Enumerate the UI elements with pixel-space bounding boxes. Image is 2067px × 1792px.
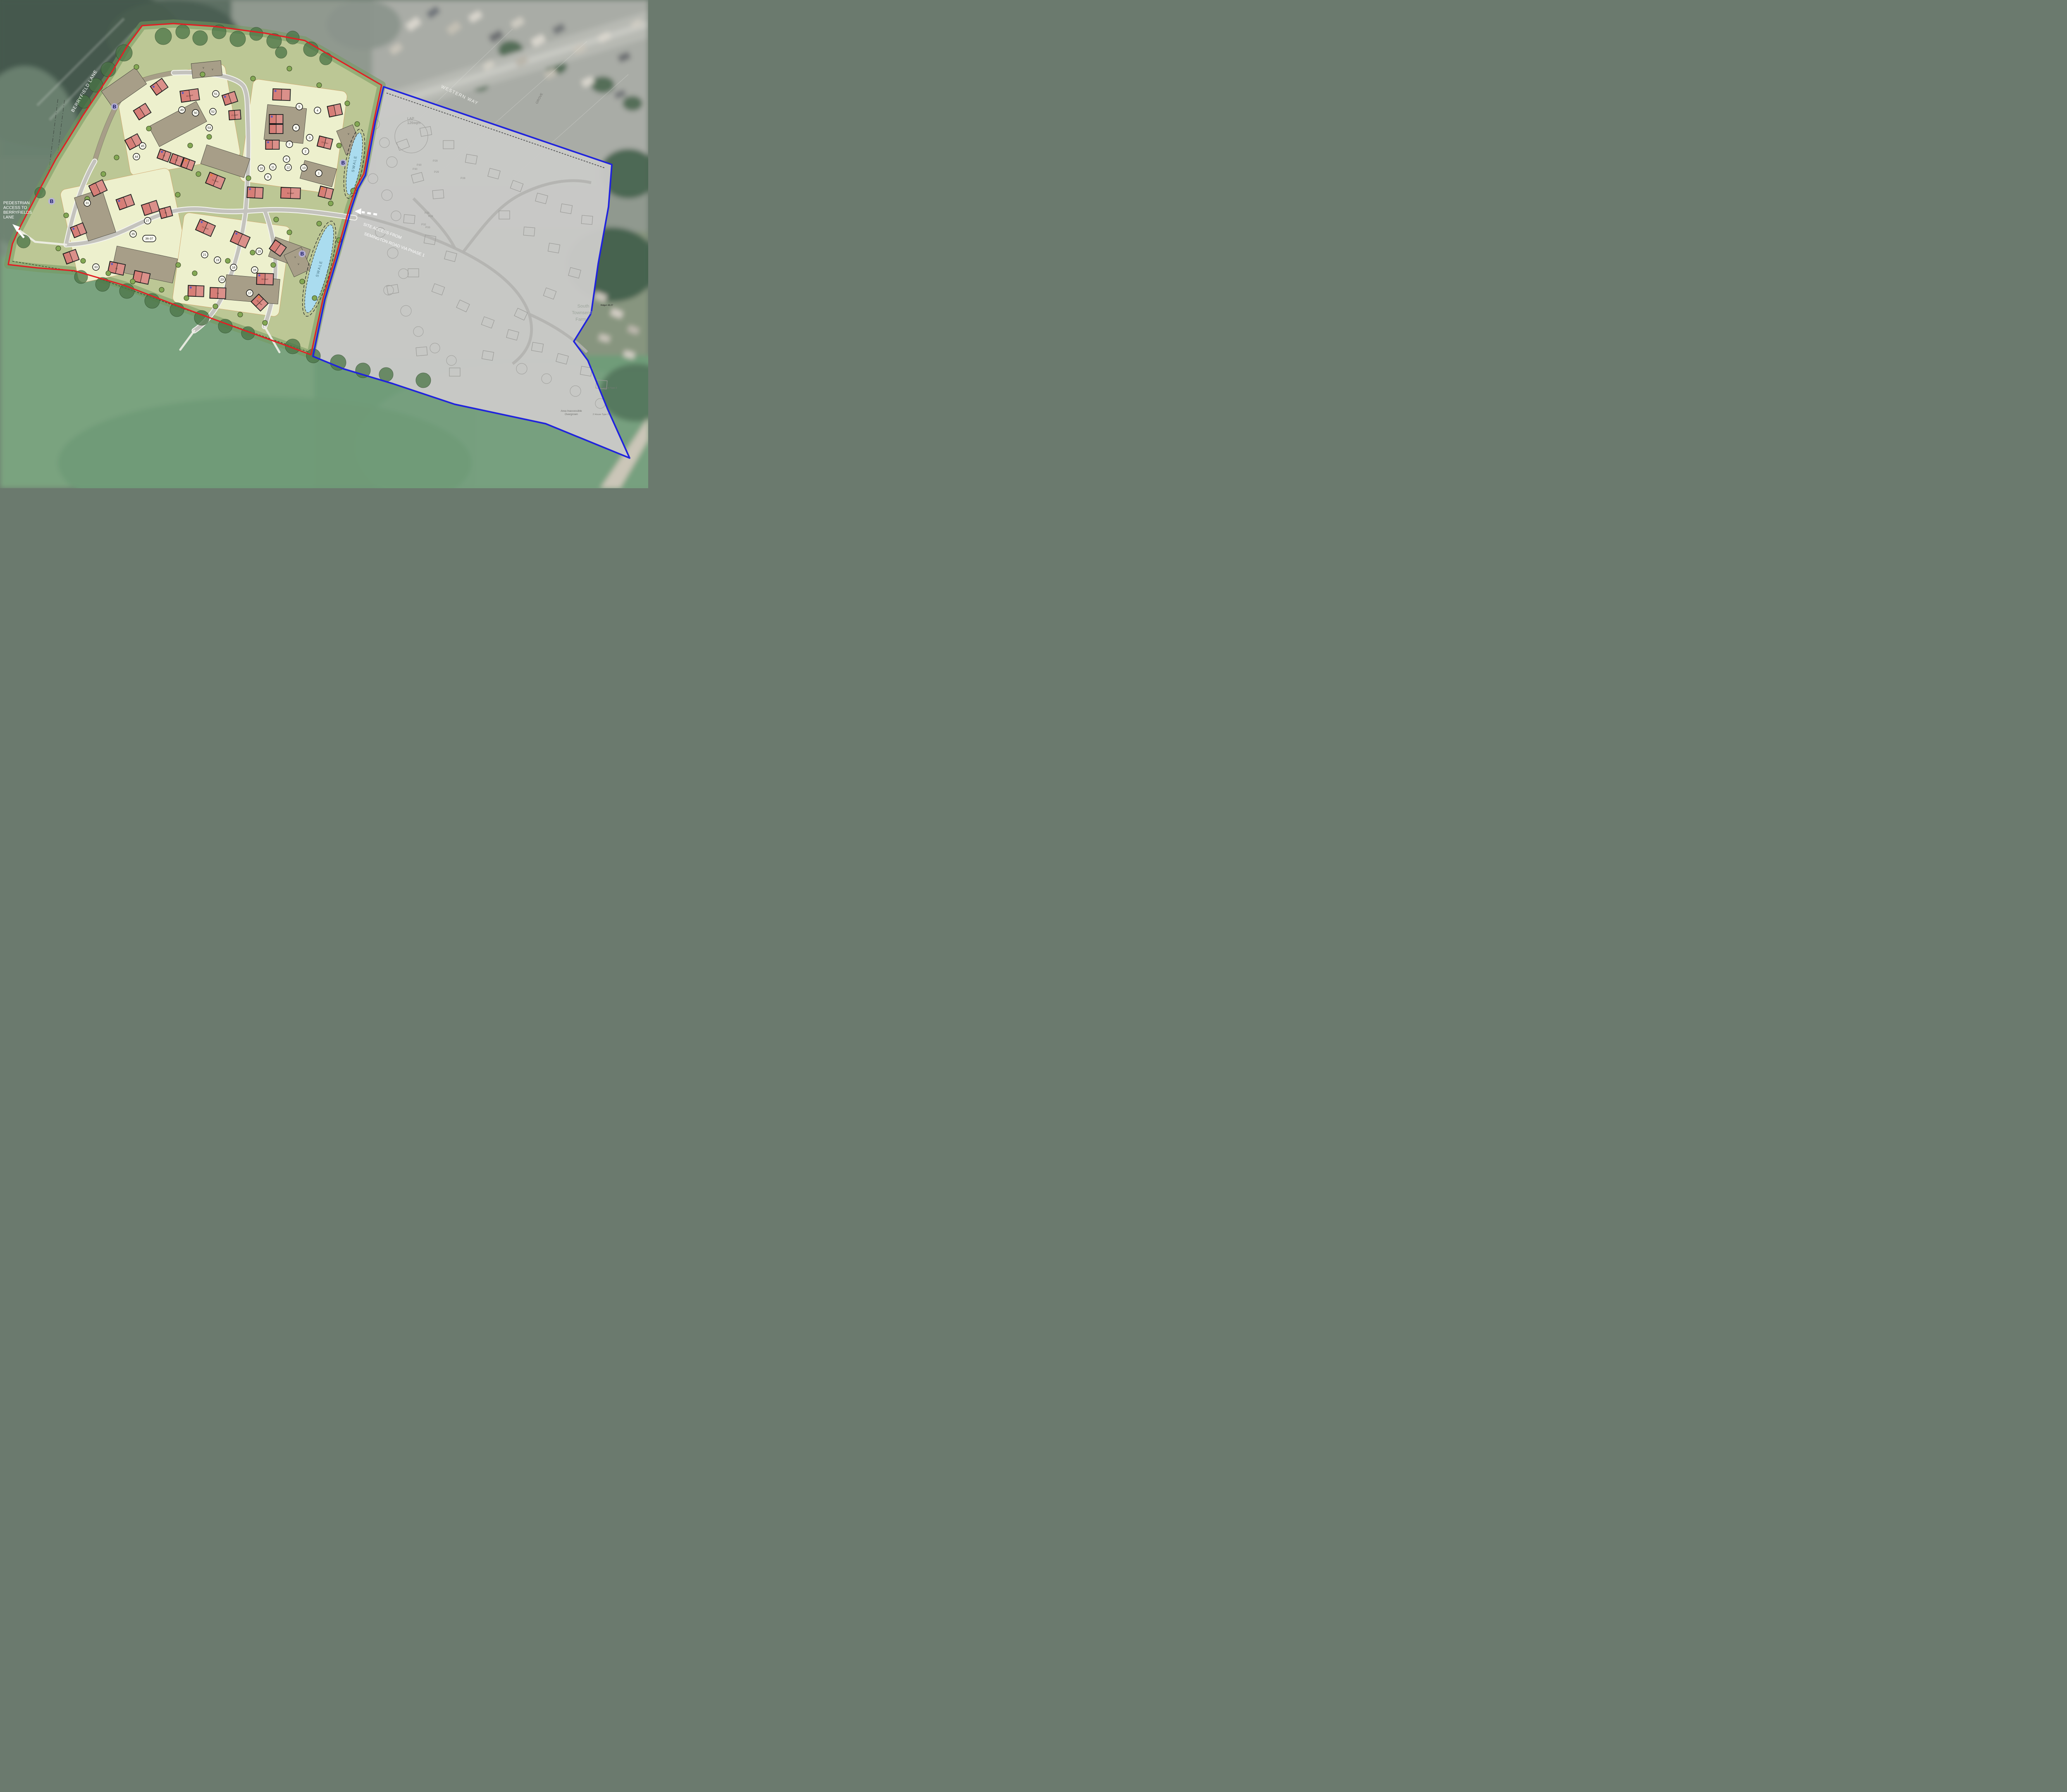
plot-number: 53 bbox=[206, 124, 212, 131]
plot-number: 23 bbox=[219, 276, 225, 283]
plot-number: 16 bbox=[251, 267, 258, 273]
street-tree bbox=[188, 143, 193, 148]
house-roof-half bbox=[276, 124, 283, 134]
south-townsend-farm-label: Farm bbox=[575, 317, 586, 322]
pedestrian-access-label: BERRYFIELDS bbox=[3, 210, 32, 215]
boundary-tree bbox=[416, 373, 431, 388]
visitor-bay-mark: v bbox=[348, 133, 349, 136]
plot-number-text: 36-37 bbox=[145, 237, 153, 241]
tenure-asterisk: ✱ bbox=[189, 286, 192, 289]
plot-number: 35 bbox=[130, 231, 136, 237]
plot-number-text: 9 bbox=[267, 175, 269, 179]
boundary-tree bbox=[230, 31, 246, 47]
tenure-asterisk: ✱ bbox=[267, 141, 270, 144]
street-tree bbox=[159, 287, 164, 292]
house-roof-half bbox=[276, 115, 283, 124]
plot-number: 36-37 bbox=[143, 235, 156, 242]
section-marker-letter: B bbox=[50, 198, 54, 204]
plot-number-text: 18 bbox=[232, 266, 235, 270]
phase1-plot-ref: P32 bbox=[421, 223, 426, 226]
street-tree bbox=[287, 66, 292, 71]
street-tree bbox=[175, 192, 180, 197]
plot-number: 49 bbox=[179, 107, 185, 113]
plot-number-text: 53 bbox=[208, 126, 211, 130]
house: B3 2B4P✱ bbox=[180, 89, 199, 103]
visitor-bay-mark: v bbox=[298, 263, 299, 266]
street-tree bbox=[238, 312, 243, 317]
street-tree bbox=[196, 172, 201, 177]
street-tree bbox=[106, 271, 111, 276]
south-townsend-farm-label: Townsend bbox=[572, 310, 592, 315]
plot-number: 1 bbox=[315, 170, 322, 177]
plot-number-text: 45 bbox=[141, 144, 144, 148]
plot-number: 31 bbox=[84, 200, 91, 206]
plot-number-text: 4 bbox=[317, 109, 318, 112]
boundary-tree bbox=[193, 31, 208, 45]
phase1-plot-ref: P28 bbox=[461, 177, 465, 180]
street-tree bbox=[251, 76, 255, 81]
street-tree bbox=[56, 246, 61, 251]
plot-number-text: 44 bbox=[135, 155, 138, 159]
phase1-plot-ref: P33 bbox=[425, 226, 430, 229]
house-type-label: 1 House Type 3 bbox=[601, 387, 617, 389]
house-roof-half bbox=[255, 187, 263, 198]
plot-number: 44 bbox=[133, 153, 140, 160]
street-tree bbox=[317, 83, 322, 88]
section-marker-letter: B bbox=[113, 104, 117, 110]
house: ✱ bbox=[273, 89, 291, 100]
plot-number-text: 2 bbox=[305, 150, 306, 153]
house: B3 2B4P bbox=[281, 187, 301, 199]
house bbox=[270, 124, 283, 134]
section-marker-letter: B bbox=[341, 160, 345, 166]
plot-number: 10 bbox=[258, 165, 265, 172]
plot-number-text: 19 bbox=[216, 258, 219, 262]
boundary-tree bbox=[320, 52, 332, 65]
street-tree bbox=[250, 250, 255, 255]
site-plan-canvas: LAP126sqmP30P29P29P30P28P32P33P32P33Area… bbox=[0, 0, 648, 488]
plot-number: 45 bbox=[139, 143, 146, 149]
plot-number: 50 bbox=[192, 110, 199, 116]
house-roof-half bbox=[282, 89, 291, 101]
house: ✱ bbox=[247, 187, 263, 198]
plot-number-text: 23 bbox=[220, 278, 224, 282]
plot-number: 5 bbox=[296, 103, 303, 110]
plot-number-text: 50 bbox=[194, 111, 197, 115]
street-tree bbox=[263, 320, 267, 325]
plot-number: 11 bbox=[270, 164, 276, 170]
aerial-tree-mass bbox=[327, 0, 401, 50]
visitor-bay-mark: v bbox=[203, 67, 204, 69]
section-marker-b: B bbox=[340, 160, 347, 167]
plot-number: 18 bbox=[230, 264, 237, 271]
phase1-plot-ref: P29 bbox=[434, 171, 439, 174]
plot-number: 21 bbox=[201, 251, 208, 258]
house: B3 2B4P✱ bbox=[257, 273, 274, 285]
plot-number-text: 13 bbox=[302, 166, 306, 170]
plot-number-text: 16 bbox=[253, 268, 256, 272]
phase1-plot-ref: P29 bbox=[433, 160, 438, 162]
street-tree bbox=[312, 296, 317, 301]
house-type-code: C4 bbox=[217, 292, 219, 294]
street-tree bbox=[225, 258, 230, 263]
house: C4 bbox=[210, 287, 226, 298]
aerial-tree-mass bbox=[623, 96, 642, 111]
street-tree bbox=[271, 262, 276, 267]
plot-number-text: 8 bbox=[286, 157, 287, 161]
visitor-bay-mark: v bbox=[294, 256, 296, 259]
phase1-plot-ref: P32 bbox=[425, 212, 430, 215]
boundary-tree bbox=[155, 28, 172, 45]
street-tree bbox=[328, 201, 333, 206]
street-tree bbox=[274, 217, 279, 222]
plot-number-text: 5 bbox=[298, 105, 300, 109]
plot-number: 3 bbox=[306, 134, 313, 141]
boundary-tree bbox=[275, 47, 287, 58]
plot-number: 19 bbox=[214, 257, 221, 263]
plot-number-text: 1 bbox=[318, 172, 320, 175]
area-inaccessible-label: Overgrown bbox=[565, 413, 578, 416]
house: F5 2B4P bbox=[229, 110, 241, 120]
house: ✱ bbox=[266, 140, 279, 149]
street-tree bbox=[355, 122, 360, 126]
plot-number-text: 27 bbox=[146, 219, 149, 223]
phase1-plot-ref: P30 bbox=[417, 164, 422, 167]
street-tree bbox=[64, 213, 69, 218]
parking-court bbox=[191, 60, 222, 78]
area-inaccessible-label: Area Inaccessible bbox=[561, 410, 582, 413]
plot-number-text: 49 bbox=[180, 108, 184, 112]
pedestrian-access-label: LANE bbox=[3, 215, 14, 220]
plot-number-text: 31 bbox=[86, 201, 89, 205]
plot-number-text: 33 bbox=[94, 265, 98, 269]
street-tree bbox=[300, 279, 305, 284]
street-tree bbox=[130, 279, 135, 284]
plot-number-text: 11 bbox=[271, 165, 274, 169]
street-tree bbox=[176, 262, 181, 267]
plot-number: 8 bbox=[283, 156, 290, 162]
lap-label: LAP bbox=[407, 117, 414, 121]
house-type-code: B3 2B4P bbox=[262, 278, 269, 281]
house-type-label: 2 House Type 3 bbox=[593, 413, 609, 416]
street-tree bbox=[246, 176, 251, 181]
boundary-tree bbox=[116, 45, 132, 61]
street-tree bbox=[317, 221, 322, 226]
house-roof-half bbox=[272, 140, 279, 149]
plot-number-text: 15 bbox=[258, 250, 261, 253]
plot-number: 15 bbox=[256, 248, 263, 255]
plot-number: 4 bbox=[314, 107, 321, 114]
plot-number-text: 7 bbox=[289, 143, 290, 146]
street-tree bbox=[101, 172, 106, 177]
house-roof-half bbox=[196, 286, 204, 297]
aerial-tree-mass bbox=[591, 76, 614, 93]
masterplan-image: LAP126sqmP30P29P29P30P28P32P33P32P33Area… bbox=[0, 0, 648, 488]
plot-number-text: 21 bbox=[203, 253, 206, 257]
plot-number: 13 bbox=[301, 165, 307, 171]
plot-number-text: 3 bbox=[309, 136, 310, 140]
street-tree bbox=[207, 134, 212, 139]
plot-number: 33 bbox=[93, 264, 99, 270]
tenure-asterisk: ✱ bbox=[270, 115, 273, 119]
street-tree bbox=[192, 271, 197, 276]
street-tree bbox=[213, 304, 218, 309]
tenure-asterisk: ✱ bbox=[274, 89, 277, 93]
plot-number: 52 bbox=[210, 108, 216, 115]
section-marker-b: B bbox=[299, 251, 306, 258]
plot-number-text: 10 bbox=[260, 167, 263, 170]
house bbox=[327, 104, 343, 117]
boundary-tree bbox=[176, 25, 190, 39]
street-tree bbox=[345, 101, 350, 106]
tenure-asterisk: ✱ bbox=[248, 187, 251, 191]
plot-number: 2 bbox=[302, 148, 309, 155]
plot-number: 7 bbox=[286, 141, 293, 148]
plot-number-text: 51 bbox=[214, 92, 217, 96]
lap-label: 126sqm bbox=[407, 121, 420, 125]
plot-number: 27 bbox=[144, 217, 151, 224]
street-tree bbox=[81, 258, 86, 263]
house: ✱ bbox=[188, 285, 204, 296]
section-marker-b: B bbox=[48, 198, 55, 205]
street-tree bbox=[200, 72, 205, 77]
visitor-bay-mark: v bbox=[212, 68, 213, 71]
boundary-tree bbox=[170, 303, 184, 317]
street-tree bbox=[134, 64, 139, 69]
plot-number-text: 17 bbox=[248, 291, 251, 295]
plot-number: 12 bbox=[285, 164, 291, 171]
section-marker-letter: B bbox=[301, 251, 304, 257]
pedestrian-access-label: ACCESS TO bbox=[3, 206, 27, 210]
pedestrian-access-label: PEDESTRIAN bbox=[3, 201, 30, 205]
plot-number: 9 bbox=[265, 174, 271, 180]
street-tree bbox=[287, 230, 292, 235]
plot-number: 51 bbox=[212, 91, 219, 97]
tenure-asterisk: ✱ bbox=[258, 274, 261, 277]
plot-number-text: 12 bbox=[286, 166, 290, 169]
boundary-tree bbox=[330, 355, 346, 370]
street-tree bbox=[337, 143, 341, 148]
plot-number: 6 bbox=[293, 124, 299, 131]
street-tree bbox=[146, 126, 151, 131]
south-townsend-farm-label: South bbox=[578, 304, 590, 309]
boundary-tree bbox=[250, 27, 263, 41]
street-tree bbox=[184, 296, 189, 301]
street-tree bbox=[114, 155, 119, 160]
plot-number-text: 35 bbox=[131, 232, 135, 236]
plot-number-text: 6 bbox=[295, 126, 297, 130]
phase1-plot-ref: P30 bbox=[413, 168, 418, 171]
section-marker-b: B bbox=[111, 103, 118, 110]
house: ✱ bbox=[270, 115, 283, 124]
plot-number-text: 52 bbox=[211, 110, 215, 114]
house-type-code: B3 2B4P bbox=[287, 192, 294, 195]
phase1-plot-ref: P33 bbox=[428, 215, 433, 218]
ridge-level-label: Ridge= 46.27 bbox=[601, 304, 613, 307]
plot-number: 17 bbox=[246, 290, 253, 296]
